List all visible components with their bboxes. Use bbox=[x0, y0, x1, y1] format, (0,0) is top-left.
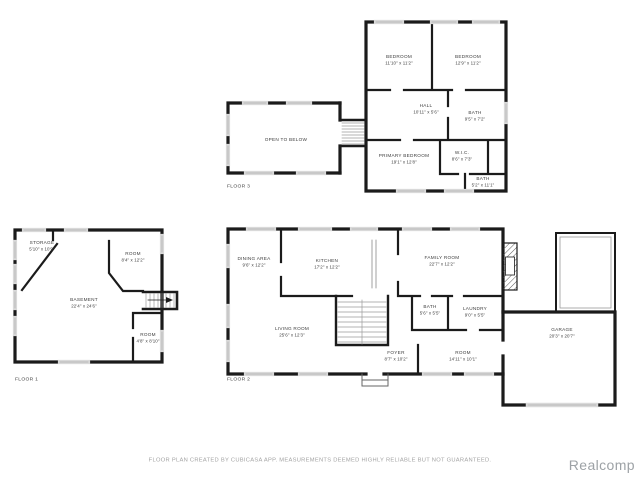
room-label-floor2-garage: GARAGE 20'3" x 20'7" bbox=[549, 327, 575, 339]
room-label-floor3-hall: HALL 10'11" x 5'6" bbox=[413, 103, 438, 115]
room-dims: 17'2" x 12'2" bbox=[314, 264, 340, 270]
room-name: BEDROOM bbox=[455, 54, 481, 60]
room-dims: 20'3" x 20'7" bbox=[549, 333, 575, 339]
floor1-stairs-arrowhead bbox=[166, 297, 173, 303]
room-label-floor3-wic: W.I.C. 8'6" x 7'3" bbox=[452, 150, 472, 162]
room-name: BEDROOM bbox=[385, 54, 413, 60]
room-label-floor3-primary-bedroom: PRIMARY BEDROOM 19'1" x 12'8" bbox=[379, 153, 430, 165]
room-dims: 5'2" x 11'1" bbox=[472, 182, 495, 188]
room-dims: 4'8" x 8'10" bbox=[136, 338, 159, 344]
floor3-plan bbox=[228, 22, 506, 191]
room-label-floor3-bedroom-left: BEDROOM 11'10" x 11'2" bbox=[385, 54, 413, 66]
room-dims: 5'10" x 10'9" bbox=[29, 246, 55, 252]
room-label-floor1-room-top: ROOM 8'4" x 12'2" bbox=[121, 251, 144, 263]
floor2-stairs-icon bbox=[338, 300, 386, 344]
room-name: KITCHEN bbox=[314, 258, 340, 264]
room-label-floor1-storage: STORAGE 5'10" x 10'9" bbox=[29, 240, 55, 252]
porch-steps bbox=[362, 374, 388, 386]
floor1-tag: FLOOR 1 bbox=[15, 376, 38, 382]
room-dims: 8'6" x 7'3" bbox=[452, 156, 472, 162]
room-dims: 14'11" x 10'1" bbox=[449, 356, 477, 362]
kitchen-counter bbox=[372, 240, 376, 288]
room-name: OPEN TO BELOW bbox=[265, 137, 307, 143]
room-label-floor3-open-to-below: OPEN TO BELOW bbox=[265, 137, 307, 143]
room-dims: 22'4" x 24'6" bbox=[70, 303, 98, 309]
floorplan-canvas: BEDROOM 11'10" x 11'2" BEDROOM 12'9" x 1… bbox=[0, 0, 640, 480]
room-label-floor3-bath: BATH 9'5" x 7'2" bbox=[465, 110, 485, 122]
room-label-floor3-bedroom-right: BEDROOM 12'9" x 11'2" bbox=[455, 54, 481, 66]
floor3-connector-walls bbox=[340, 120, 366, 146]
realcomp-watermark: Realcomp bbox=[569, 457, 635, 473]
room-dims: 19'1" x 12'8" bbox=[379, 159, 430, 165]
room-dims: 12'9" x 11'2" bbox=[455, 60, 481, 66]
room-dims: 9'5" x 7'2" bbox=[465, 116, 485, 122]
deck-inner-line bbox=[560, 237, 611, 308]
room-dims: 25'6" x 12'3" bbox=[275, 332, 309, 338]
room-label-floor1-room-bottom: ROOM 4'8" x 8'10" bbox=[136, 332, 159, 344]
room-dims: 22'7" x 12'2" bbox=[425, 261, 460, 267]
disclaimer-text: FLOOR PLAN CREATED BY CUBICASA APP. MEAS… bbox=[149, 457, 492, 464]
room-label-floor2-dining-area: DINING AREA 9'6" x 12'2" bbox=[237, 256, 270, 268]
room-name: STORAGE bbox=[29, 240, 55, 246]
room-label-floor1-basement: BASEMENT 22'4" x 24'6" bbox=[70, 297, 98, 309]
room-name: FOYER bbox=[384, 350, 407, 356]
room-label-floor2-foyer: FOYER 8'7" x 10'2" bbox=[384, 350, 407, 362]
room-dims: 10'11" x 5'6" bbox=[413, 109, 438, 115]
floor3-stairs-icon bbox=[342, 123, 364, 144]
room-name: FAMILY ROOM bbox=[425, 255, 460, 261]
room-label-floor2-bath: BATH 5'6" x 5'5" bbox=[420, 304, 440, 316]
floor1-stair-walls bbox=[143, 292, 177, 309]
floor2-plan bbox=[228, 229, 615, 405]
room-label-floor2-family-room: FAMILY ROOM 22'7" x 12'2" bbox=[425, 255, 460, 267]
room-name: GARAGE bbox=[549, 327, 575, 333]
floorplan-drawing bbox=[0, 0, 640, 480]
room-dims: 5'6" x 5'5" bbox=[420, 310, 440, 316]
room-label-floor2-kitchen: KITCHEN 17'2" x 12'2" bbox=[314, 258, 340, 270]
garage-walls bbox=[503, 312, 615, 405]
room-label-floor3-bath-small: BATH 5'2" x 11'1" bbox=[472, 176, 495, 188]
room-dims: 9'0" x 5'5" bbox=[463, 312, 487, 318]
room-name: DINING AREA bbox=[237, 256, 270, 262]
room-name: PRIMARY BEDROOM bbox=[379, 153, 430, 159]
floor3-exterior-walls bbox=[228, 22, 506, 191]
room-label-floor2-living-room: LIVING ROOM 25'6" x 12'3" bbox=[275, 326, 309, 338]
deck-outline bbox=[556, 233, 615, 312]
room-dims: 8'7" x 10'2" bbox=[384, 356, 407, 362]
room-dims: 11'10" x 11'2" bbox=[385, 60, 413, 66]
floor3-tag: FLOOR 3 bbox=[227, 183, 250, 189]
room-dims: 8'4" x 12'2" bbox=[121, 257, 144, 263]
room-label-floor2-room: ROOM 14'11" x 10'1" bbox=[449, 350, 477, 362]
room-name: LAUNDRY bbox=[463, 306, 487, 312]
floor2-tag: FLOOR 2 bbox=[227, 376, 250, 382]
room-dims: 9'6" x 12'2" bbox=[237, 262, 270, 268]
room-name: BASEMENT bbox=[70, 297, 98, 303]
fireplace-box bbox=[506, 257, 515, 275]
room-label-floor2-laundry: LAUNDRY 9'0" x 5'5" bbox=[463, 306, 487, 318]
room-name: LIVING ROOM bbox=[275, 326, 309, 332]
